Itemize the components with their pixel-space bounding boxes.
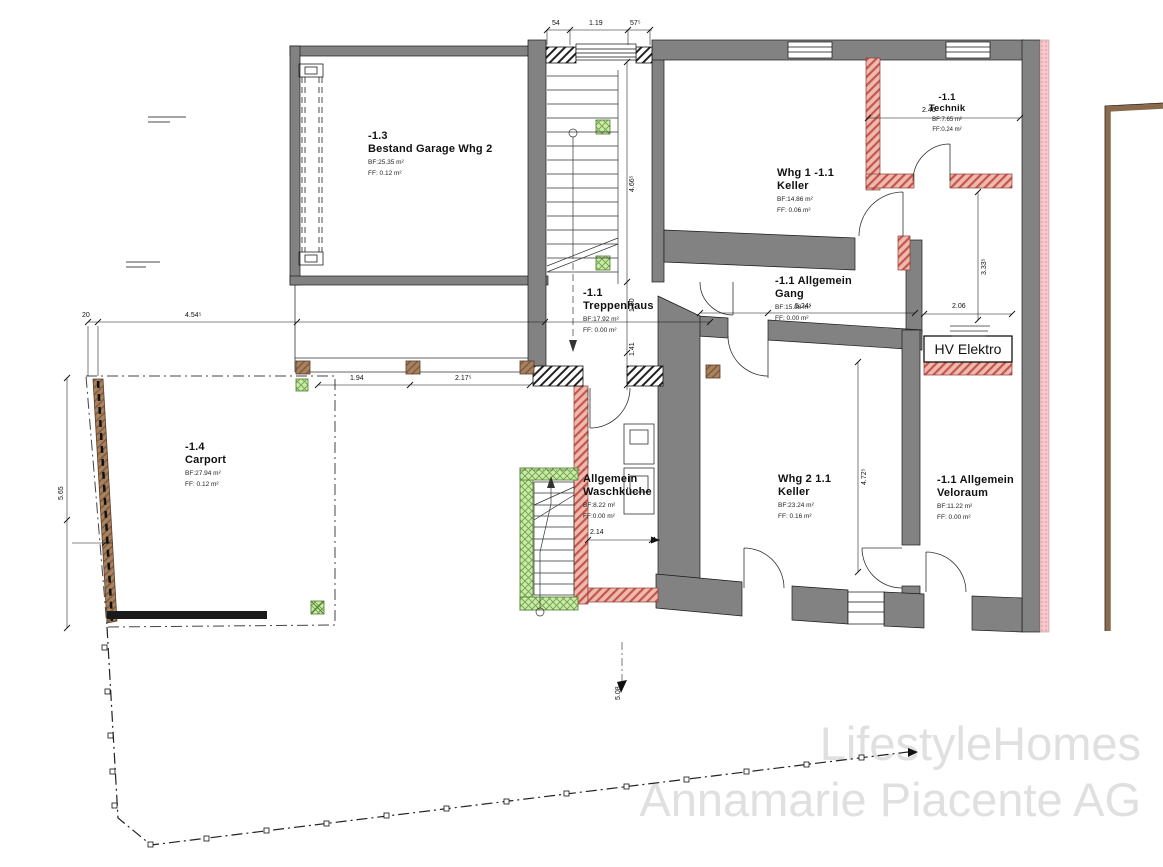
room-name: Bestand Garage Whg 2 [368,143,492,156]
carport-outline [86,376,335,627]
room-id: Whg 1 -1.1 [777,167,834,180]
dimension-label: 2.06 [952,303,966,310]
insulation-strip [1040,40,1049,632]
carport-rear-wall [107,611,267,619]
room-area-bf: BF:14.86 m² [777,195,834,206]
room-area-bf: BF:25.35 m² [368,158,492,169]
garage-door-rails [299,64,323,265]
room-id: Whg 2 1.1 [778,473,831,486]
room-id: -1.4 [185,441,226,454]
room-area-ff: FF: 0.16 m² [778,512,831,523]
room-area-bf: BF:8.22 m² [583,501,652,512]
dimension-label: 4.66⁵ [629,175,636,192]
dimension-label: 1.50 [629,298,636,312]
room-area-ff: FF: 0.00 m² [937,513,1014,524]
dimension-label: 4.54⁵ [185,312,202,319]
room-name: Carport [185,454,226,467]
room-area-bf: BF:27.94 m² [185,469,226,480]
dimension-label: 1.19 [589,20,603,27]
room-id: -1.1 Allgemein [937,474,1014,487]
room-name: Gang [775,288,852,301]
room-label-whg1-keller: Whg 1 -1.1 Keller BF:14.86 m² FF: 0.06 m… [777,167,834,216]
dimension-label: 57⁵ [630,20,641,27]
room-area-bf: BF:23.24 m² [778,501,831,512]
dimension-label: 5.65 [58,486,65,500]
room-area-ff: FF: 0.12 m² [368,169,492,180]
room-area-ff: FF: 0.12 m² [185,480,226,491]
room-label-technik: -1.1 Technik BF:7.65 m² FF:0.24 m² [902,92,992,136]
room-label-carport: -1.4 Carport BF:27.94 m² FF: 0.12 m² [185,441,226,490]
room-area-bf: BF:11.22 m² [937,502,1014,513]
room-id: -1.1 [583,287,654,300]
dimension-label: 1.41 [629,342,636,356]
dimension-label: 2.46 [922,107,936,114]
dimension-label: 20 [82,312,90,319]
room-area-bf: BF:15.88 m² [775,303,852,314]
dimension-label: 54 [552,20,560,27]
room-label-whg2-keller: Whg 2 1.1 Keller BF:23.24 m² FF: 0.16 m² [778,473,831,522]
survey-marks [126,117,186,267]
dimension-label: 1.94 [350,375,364,382]
dimension-label: 5.24⁵ [795,303,812,310]
room-id: Allgemein [583,473,652,486]
room-id: -1.1 [902,92,992,103]
room-name: Veloraum [937,487,1014,500]
neighbor-boundary [1105,103,1163,631]
walkway-lines [295,285,533,372]
site-boundary [102,627,918,847]
room-name: Keller [778,486,831,499]
dimension-label: 3.33⁵ [981,258,988,275]
room-name: Keller [777,180,834,193]
room-label-veloraum: -1.1 Allgemein Veloraum BF:11.22 m² FF: … [937,474,1014,523]
dimension-label: 2.17⁵ [455,375,472,382]
room-id: -1.1 Allgemein [775,275,852,288]
room-name: Technik [902,103,992,114]
hv-elektro-label: HV Elektro [924,336,1012,362]
room-area-bf: BF:7.65 m² [902,116,992,126]
dimension-label: 5.08 [615,686,622,700]
room-id: -1.3 [368,130,492,143]
room-name: Treppenhaus [583,300,654,313]
room-label-garage: -1.3 Bestand Garage Whg 2 BF:25.35 m² FF… [368,130,492,179]
room-area-ff: FF: 0.06 m² [777,206,834,217]
room-name: Waschküche [583,486,652,499]
room-area-ff: FF: 0.00 m² [583,326,654,337]
room-label-treppenhaus: -1.1 Treppenhaus BF:17.92 m² FF: 0.00 m² [583,287,654,336]
room-area-bf: BF:17.92 m² [583,315,654,326]
dimension-label: 2.14 [590,529,604,536]
floor-plan-page: LifestyleHomes Annamarie Piacente AG [0,0,1163,867]
room-label-waschkueche: Allgemein Waschküche BF:8.22 m² FF:0.00 … [583,473,652,522]
room-area-ff: FF:0.24 m² [902,126,992,136]
room-area-ff: FF:0.00 m² [583,512,652,523]
room-label-gang: -1.1 Allgemein Gang BF:15.88 m² FF: 0.00… [775,275,852,324]
room-area-ff: FF: 0.00 m² [775,314,852,325]
dimension-label: 4.72⁵ [861,468,868,485]
